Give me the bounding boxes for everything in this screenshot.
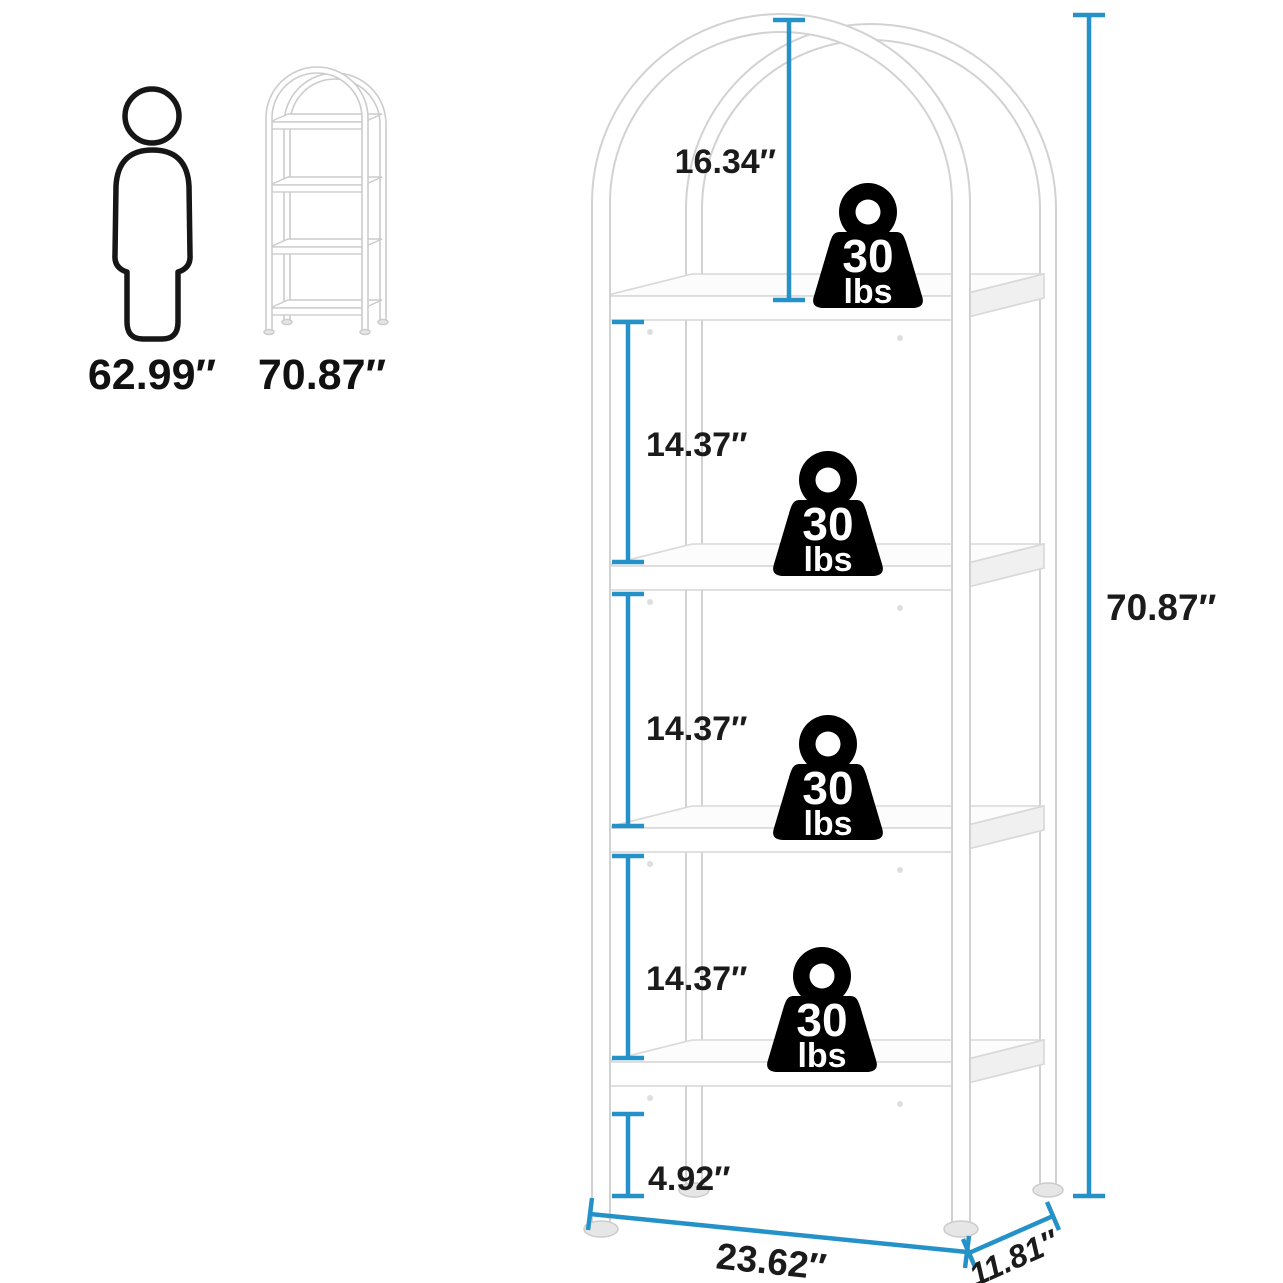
dimension-bottom-clearance: 4.92″ (612, 1114, 730, 1198)
dimension-shelf-gap-2: 14.37″ (612, 594, 747, 826)
weight-capacity-icon: 30 lbs (813, 183, 923, 311)
weight-capacity-icon: 30 lbs (773, 715, 883, 843)
dimension-label-shelf-gap-3: 14.37″ (646, 960, 747, 998)
dimension-width: 23.62″ (588, 1198, 969, 1283)
person-body (115, 150, 190, 339)
dimension-annotations: 16.34″ 14.37″ 14.37″ 14.37″ (588, 15, 1217, 1283)
size-reference: 62.99″ 70.87″ (88, 67, 388, 399)
dimension-label-arch-to-top-shelf: 16.34″ (675, 143, 776, 181)
dimension-label-shelf-gap-1: 14.37″ (646, 426, 747, 464)
weight-unit-label: lbs (797, 1037, 846, 1075)
weight-capacity-icon: 30 lbs (767, 947, 877, 1075)
weight-unit-label: lbs (803, 805, 852, 843)
person-height-label: 62.99″ (88, 351, 216, 399)
dimension-label-bottom-clearance: 4.92″ (648, 1160, 730, 1198)
dimension-shelf-gap-1: 14.37″ (612, 322, 747, 562)
dimension-label-shelf-gap-2: 14.37″ (646, 710, 747, 748)
back-right-foot (1033, 1183, 1063, 1197)
person-head (125, 89, 179, 143)
person-icon (115, 89, 190, 339)
dimension-depth: 11.81″ (963, 1202, 1065, 1283)
reference-shelf-height-label: 70.87″ (258, 351, 386, 399)
product-dimension-diagram: 62.99″ 70.87″ (0, 0, 1283, 1283)
reference-shelf-icon (264, 67, 388, 335)
dimension-total-height: 70.87″ (1073, 15, 1217, 1196)
dimension-shelf-gap-3: 14.37″ (612, 856, 747, 1058)
weight-unit-label: lbs (803, 541, 852, 579)
dimension-label-total-height: 70.87″ (1106, 587, 1217, 628)
front-right-foot (944, 1221, 978, 1237)
weight-capacity-icon: 30 lbs (773, 451, 883, 579)
diagram-canvas: 62.99″ 70.87″ (0, 0, 1283, 1283)
weight-unit-label: lbs (843, 273, 892, 311)
dimension-label-width: 23.62″ (714, 1235, 828, 1283)
